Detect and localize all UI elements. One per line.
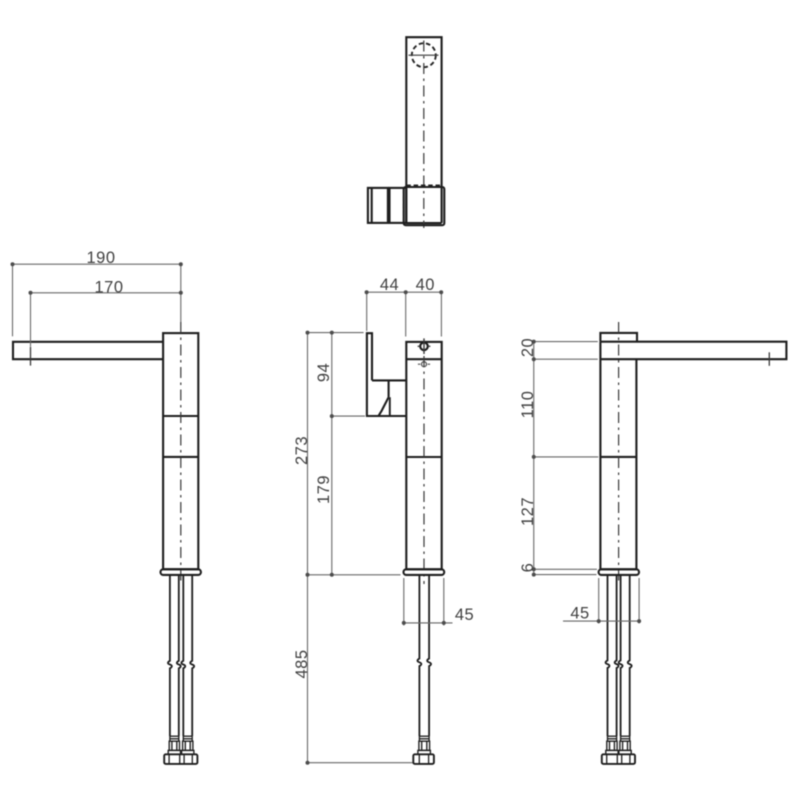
svg-text:6: 6 — [519, 563, 537, 573]
svg-text:273: 273 — [293, 436, 311, 465]
svg-text:110: 110 — [519, 391, 537, 419]
svg-text:45: 45 — [570, 604, 589, 622]
svg-text:485: 485 — [293, 649, 311, 678]
svg-text:20: 20 — [519, 338, 537, 357]
svg-text:44: 44 — [380, 276, 399, 294]
svg-text:40: 40 — [416, 276, 435, 294]
svg-text:127: 127 — [519, 497, 537, 526]
svg-text:190: 190 — [86, 249, 115, 267]
svg-text:45: 45 — [455, 606, 474, 624]
svg-text:94: 94 — [315, 363, 333, 382]
svg-text:170: 170 — [94, 278, 123, 296]
svg-text:179: 179 — [315, 475, 333, 504]
